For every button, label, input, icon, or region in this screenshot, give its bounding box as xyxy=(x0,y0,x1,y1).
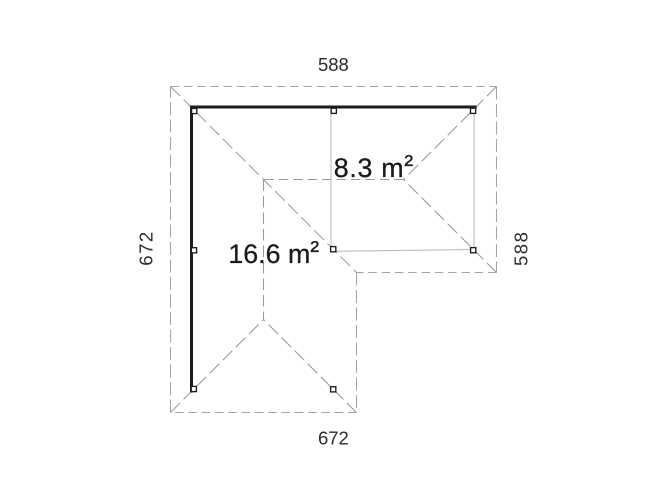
svg-text:588: 588 xyxy=(318,54,349,75)
svg-text:672: 672 xyxy=(318,428,349,449)
svg-text:672: 672 xyxy=(135,230,156,265)
svg-text:588: 588 xyxy=(511,231,532,266)
svg-text:8.3 m²: 8.3 m² xyxy=(334,150,414,184)
svg-text:16.6 m²: 16.6 m² xyxy=(228,236,319,270)
